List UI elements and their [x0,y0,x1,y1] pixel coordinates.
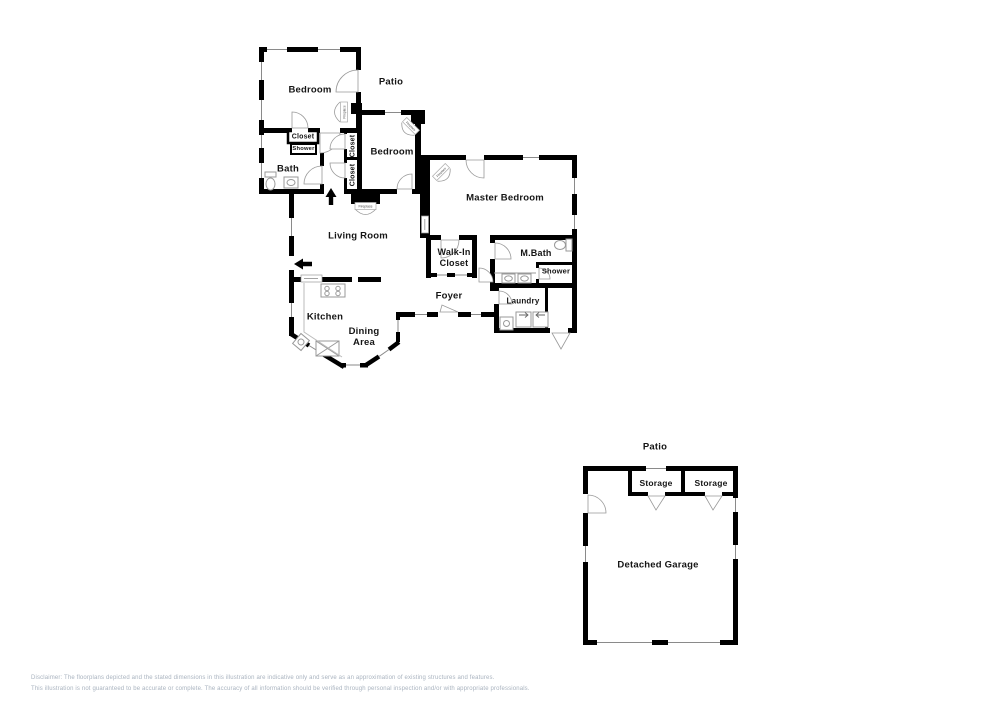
room-label-closet-bath: Closet [292,134,315,141]
master-corner-fireplace: Fireplace [433,164,454,185]
dining-line-1: Dining [349,326,380,337]
room-label-closet-hall-2: Closet [350,164,357,187]
laundry-sink-icon [500,317,513,330]
disclaimer-line-1: Disclaimer: The floorplans depicted and … [31,673,530,684]
master-double-sink-icon [494,273,536,283]
room-label-shower-bath: Shower [292,146,314,152]
living-room-fireplace: Fireplace [351,194,380,215]
disclaimer-line-2: This illustration is not guaranteed to b… [31,684,530,695]
room-label-walk-in-closet: Walk-In Closet [437,247,470,269]
left-arrow-icon [294,259,312,270]
fireplace-label: Fireplace [359,205,373,209]
washer-dryer-icon [516,312,548,327]
room-label-laundry: Laundry [507,297,540,306]
room-label-patio-garage: Patio [643,442,667,453]
room-label-storage-1: Storage [639,478,672,488]
stove-icon [321,284,345,297]
room-label-living-room: Living Room [328,231,388,242]
room-label-shower-master: Shower [542,267,570,276]
entry-arrows [294,188,337,270]
room-label-kitchen: Kitchen [307,312,343,323]
room-label-storage-2: Storage [694,478,727,488]
floorplan-canvas: Fireplace Fireplace Fireplace Fireplace [0,0,1000,707]
master-toilet-icon [555,239,573,251]
room-label-m-bath: M.Bath [520,248,551,258]
room-label-dining-area: Dining Area [349,326,380,348]
room-label-patio-house: Patio [379,77,403,88]
fireplace-label: Fireplace [342,105,346,118]
room-label-closet-hall-1: Closet [350,135,357,158]
wall-tags [301,216,429,282]
room-label-bedroom-1: Bedroom [288,85,331,96]
sink-icon [284,177,298,188]
disclaimer: Disclaimer: The floorplans depicted and … [31,673,530,695]
walk-in-line-1: Walk-In [437,247,470,258]
floorplan-drawing: Fireplace Fireplace Fireplace Fireplace [0,0,1000,707]
kitchen-island-icon [316,341,339,356]
room-label-bedroom-2: Bedroom [370,147,413,158]
dining-line-2: Area [349,337,380,348]
toilet-icon [265,172,276,190]
walk-in-line-2: Closet [437,258,470,269]
room-label-foyer: Foyer [436,291,463,302]
room-label-master-bedroom: Master Bedroom [466,193,544,204]
room-label-bath: Bath [277,164,299,175]
room-label-detached-garage: Detached Garage [617,560,698,571]
